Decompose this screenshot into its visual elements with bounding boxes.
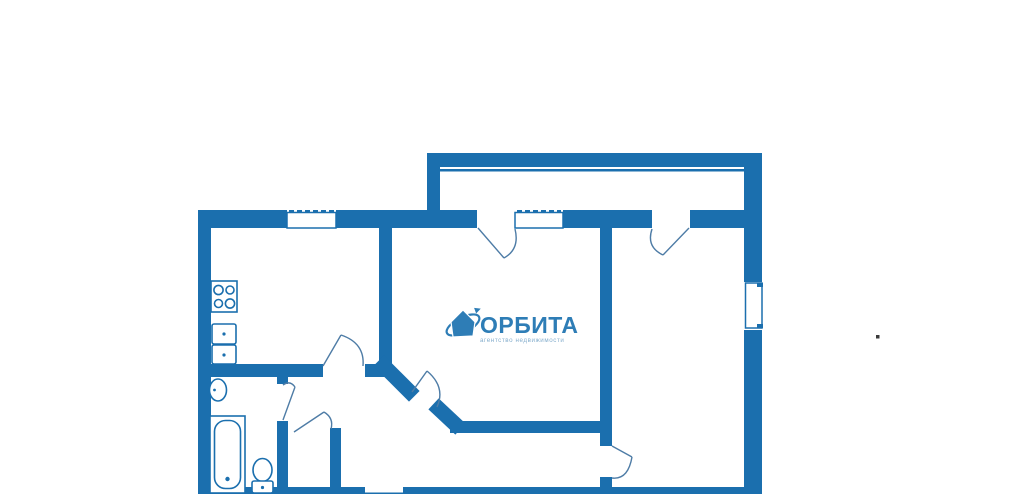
top-wall-center <box>336 210 477 228</box>
bathroom-fixtures <box>210 379 274 493</box>
living-window-frame <box>515 213 563 229</box>
kitchen-window <box>287 211 336 228</box>
bedroom-window-notch-top <box>757 283 763 287</box>
closet-door <box>294 412 332 432</box>
house-orbit-icon <box>444 306 483 340</box>
floor-plan: ОРБИТА агентство недвижимости <box>0 0 1024 494</box>
balcony-left-wall <box>427 153 440 211</box>
kitchen-fixtures <box>211 281 237 364</box>
right-wall-lower <box>744 330 762 494</box>
logo-text: ОРБИТА <box>480 312 579 338</box>
kitchen-door <box>323 335 363 366</box>
toilet-bowl <box>253 459 272 482</box>
watermark-logo: ОРБИТА агентство недвижимости <box>444 306 579 344</box>
floor-plan-page: ОРБИТА агентство недвижимости <box>0 0 1024 494</box>
balcony-railing <box>440 169 745 172</box>
bedroom-window-notch-bottom <box>757 324 763 328</box>
balcony <box>427 153 762 211</box>
closet-right-wall <box>330 428 341 494</box>
bedroom-window-frame <box>746 283 763 328</box>
stove-icon <box>211 281 237 312</box>
living-bedroom-divider <box>600 228 612 446</box>
living-room-window <box>515 211 563 228</box>
toilet-icon <box>252 459 273 494</box>
bathtub-icon <box>210 416 245 493</box>
bedroom-window <box>746 283 764 328</box>
right-wall-upper <box>744 153 762 282</box>
kitchen-window-frame <box>287 213 336 229</box>
top-wall-between-doors <box>563 210 652 228</box>
balcony-door-living <box>478 228 516 258</box>
artifact-dot <box>876 335 880 339</box>
interior-walls <box>198 228 612 494</box>
doors <box>283 228 689 478</box>
bathroom-door <box>283 383 295 420</box>
balcony-top-wall <box>427 153 762 167</box>
bottom-wall-right <box>403 487 757 494</box>
wash-basin-icon <box>210 379 227 401</box>
windows <box>287 211 763 328</box>
hallway-diagonal-wall-upper <box>384 366 409 391</box>
living-bedroom-divider-stub <box>600 477 612 488</box>
living-bottom-wall <box>450 421 612 433</box>
bedroom-door <box>612 446 632 478</box>
kitchen-living-divider <box>379 228 392 368</box>
bathroom-right-wall <box>277 421 288 494</box>
balcony-door-bedroom <box>650 228 689 255</box>
kitchen-sink-icon <box>212 324 236 364</box>
logo-tagline: агентство недвижимости <box>480 337 564 344</box>
top-wall-kitchen-left <box>198 210 287 228</box>
left-wall <box>198 210 211 494</box>
kitchen-bottom-wall <box>198 364 323 377</box>
